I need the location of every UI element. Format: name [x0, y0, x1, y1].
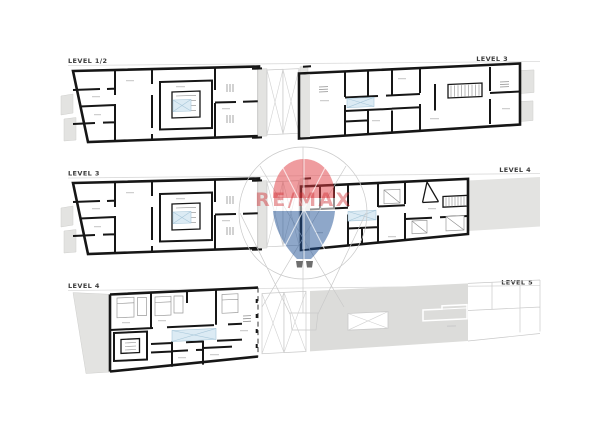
floor-plan-level-1-2 [61, 67, 259, 143]
floor-plan-level-3-left [61, 179, 259, 255]
label-level-4-right: LEVEL 4 [499, 166, 531, 174]
balloon-basket [296, 261, 313, 268]
terrace-level-4 [468, 177, 540, 231]
label-level-1-2: LEVEL 1/2 [68, 57, 107, 65]
label-level-5-right: LEVEL 5 [501, 279, 533, 287]
floorplan-drawing: LEVEL 1/2 LEVEL 3 LEVEL 3 LEVEL 4 LEVEL … [0, 0, 600, 423]
row3-rule [68, 286, 540, 291]
floor-plan-level-4-right [301, 177, 540, 250]
roof-plan-level-5 [310, 280, 540, 351]
roof-surface [310, 283, 468, 351]
floor-plan-level-3-top [299, 64, 534, 139]
label-level-3-right: LEVEL 3 [476, 55, 508, 63]
terrace-level-4-left [73, 293, 110, 374]
label-level-3-left: LEVEL 3 [68, 170, 100, 178]
floorplan-sheet: LEVEL 1/2 LEVEL 3 LEVEL 3 LEVEL 4 LEVEL … [0, 0, 600, 423]
label-level-4-left: LEVEL 4 [68, 282, 100, 290]
roof-structure-lines [468, 280, 540, 341]
lightwell-connector-row3 [262, 291, 306, 353]
remax-brand-text: RE/MAX [255, 189, 353, 211]
floor-plan-level-4-left [73, 288, 258, 374]
